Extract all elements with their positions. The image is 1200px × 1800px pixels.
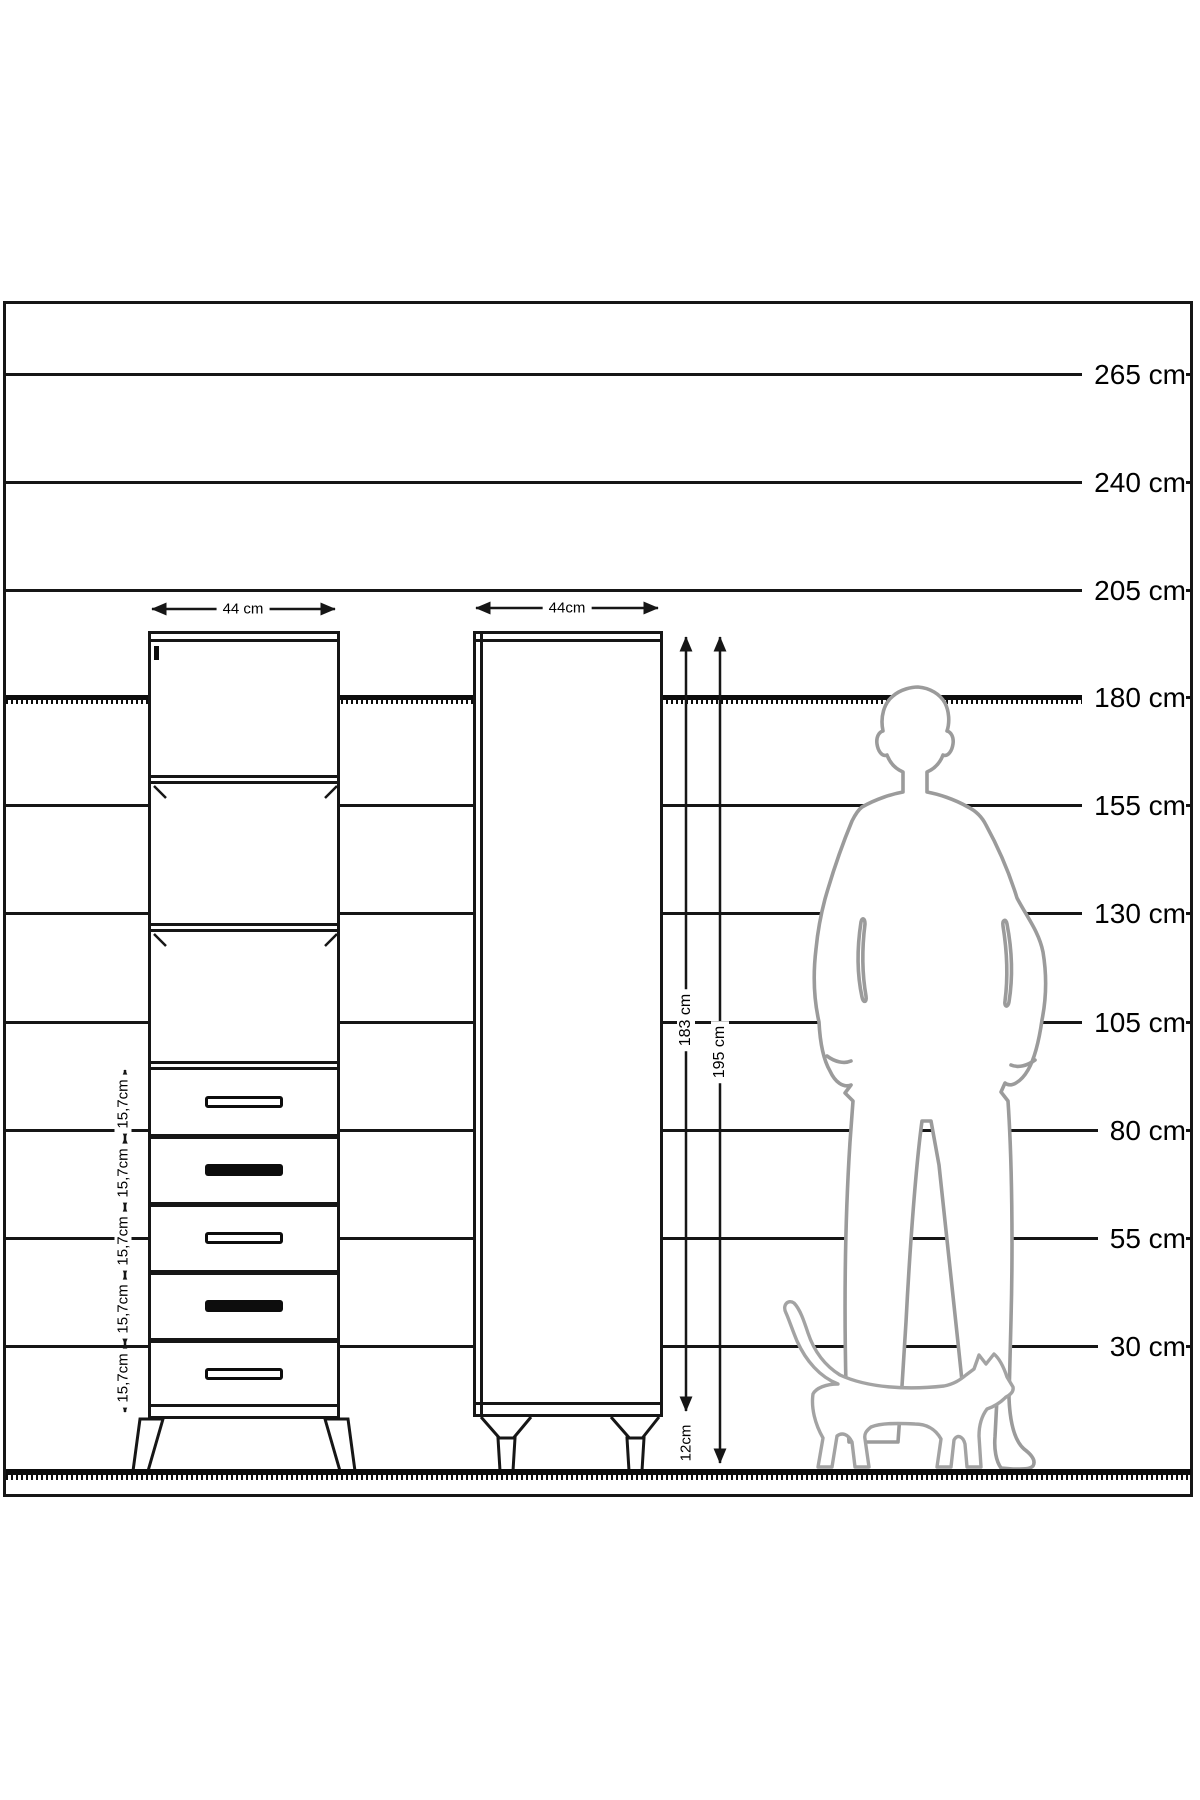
side-cabinet-legs [481,1417,659,1471]
person-silhouette [814,687,1045,1469]
front-cabinet-legs [133,1419,355,1471]
body-height-dim: 183 cm [677,989,695,1051]
drawer-height-dim: 15,7cm [115,1348,132,1407]
furniture-dimension-diagram: 265 cm240 cm205 cm180 cm155 cm130 cm105 … [0,0,1200,1800]
front-width-dim: 44 cm [217,601,270,618]
ground-line [6,1469,1191,1475]
side-width-dim: 44cm [543,600,592,617]
drawer-height-dim: 15,7cm [115,1075,132,1134]
shelf-notches [154,786,337,946]
leg-height-dim: 12cm [678,1420,695,1467]
drawer-height-dim: 15,7cm [115,1280,132,1339]
drawer-height-dim: 15,7cm [115,1143,132,1202]
dimension-lines [125,608,720,1464]
diagram-art [0,0,1200,1800]
total-height-dim: 195 cm [711,1021,729,1083]
drawer-height-dim: 15,7cm [115,1211,132,1270]
